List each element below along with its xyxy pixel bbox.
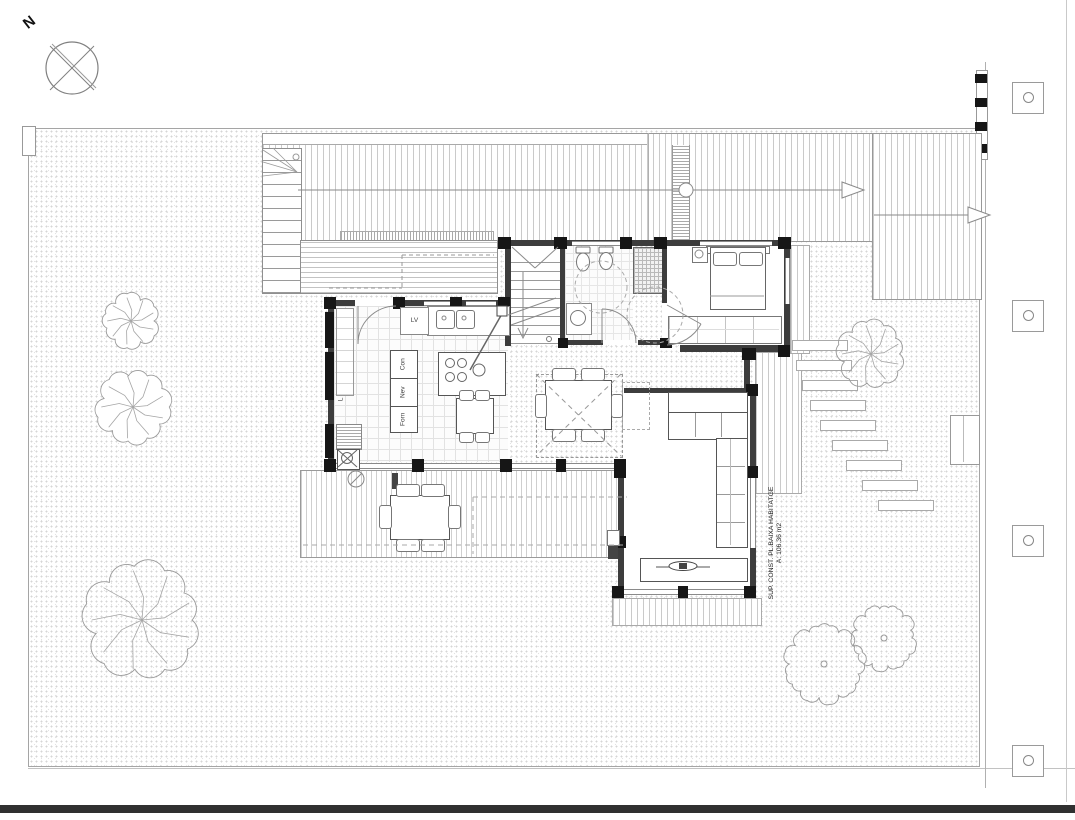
wall-segment-bedroom-south bbox=[680, 345, 790, 352]
chair bbox=[611, 394, 623, 418]
compass-north-icon bbox=[46, 42, 98, 94]
column-block bbox=[558, 338, 568, 348]
bath-vanity bbox=[566, 303, 592, 335]
dishwasher: LV bbox=[400, 307, 429, 335]
pantry-shelves bbox=[336, 308, 354, 396]
fence-post bbox=[1012, 745, 1044, 777]
appliance-tower: Con Nev Forn bbox=[390, 350, 418, 433]
north-label: N bbox=[20, 12, 39, 32]
wardrobe bbox=[668, 316, 782, 344]
fence-post bbox=[1012, 525, 1044, 557]
driveway bbox=[872, 133, 982, 300]
chair bbox=[552, 429, 576, 442]
stepping-plank bbox=[820, 420, 876, 431]
utility-boiler bbox=[336, 424, 362, 450]
stepping-plank bbox=[802, 380, 858, 391]
chair bbox=[581, 368, 605, 381]
wall-living-east-upper bbox=[750, 388, 756, 474]
chair bbox=[535, 394, 547, 418]
shower-tray bbox=[633, 247, 664, 294]
column-block bbox=[324, 459, 336, 472]
stepping-plank bbox=[846, 460, 902, 471]
deck-strip-below-living bbox=[612, 598, 762, 626]
chair bbox=[379, 505, 392, 529]
roof-pergola bbox=[262, 133, 874, 242]
plot-boundary-line-right bbox=[1066, 0, 1067, 802]
kitchen-table bbox=[456, 398, 494, 434]
stepping-plank bbox=[810, 400, 866, 411]
pantry-label: L bbox=[339, 397, 346, 401]
chair bbox=[459, 390, 474, 401]
garden-gate-east bbox=[950, 415, 980, 465]
column-block bbox=[500, 459, 512, 472]
kitchen-sink-basin bbox=[456, 310, 475, 329]
chair bbox=[475, 390, 490, 401]
roof-gutter-strip bbox=[672, 145, 690, 240]
stepping-plank bbox=[832, 440, 888, 451]
sofa-back-line bbox=[730, 439, 731, 545]
column-block bbox=[614, 466, 626, 478]
fence-rail-segment bbox=[975, 74, 987, 83]
area-annotation: SUP. CONST. PL.BAIXA HABITATGE A: 106.36… bbox=[768, 478, 786, 608]
floor-plan-canvas: LV Con Nev Forn L bbox=[0, 0, 1075, 820]
window-bath-north bbox=[572, 241, 626, 246]
oven-label: Forn bbox=[401, 413, 408, 426]
fence-post bbox=[1012, 300, 1044, 332]
column-block bbox=[678, 586, 688, 598]
column-block bbox=[556, 459, 566, 472]
tall-unit-fridge: Nev bbox=[391, 379, 417, 407]
fridge-label: Nev bbox=[401, 387, 408, 399]
sofa-cushion-line bbox=[695, 413, 696, 437]
window-south-main bbox=[328, 463, 624, 469]
door-gap-kitchen-north bbox=[355, 300, 395, 306]
column-block bbox=[742, 348, 756, 360]
stepping-plank bbox=[862, 480, 918, 491]
column-block bbox=[412, 459, 424, 472]
site-boundary-line-bottom bbox=[28, 768, 1075, 769]
area-annotation-line1: SUP. CONST. PL.BAIXA HABITATGE bbox=[768, 478, 776, 608]
chair bbox=[421, 484, 445, 497]
roof-edge-strip bbox=[263, 134, 647, 145]
fence-rail-segment bbox=[975, 98, 987, 107]
side-door-leaf bbox=[608, 545, 618, 559]
column-block bbox=[744, 586, 756, 598]
column-block bbox=[620, 237, 632, 249]
column-block bbox=[324, 297, 336, 309]
kitchen-sink-basin bbox=[436, 310, 455, 329]
stepping-plank bbox=[878, 500, 934, 511]
window-living-south bbox=[624, 589, 752, 595]
column-block bbox=[325, 352, 334, 400]
post-circle bbox=[1023, 755, 1034, 766]
chair bbox=[581, 429, 605, 442]
terrace-deck-south bbox=[300, 470, 632, 558]
gate-leaf-line bbox=[963, 416, 964, 462]
stepping-plank bbox=[796, 360, 852, 371]
chair bbox=[396, 484, 420, 497]
tall-unit-oven: Forn bbox=[391, 407, 417, 432]
door-gap-bath bbox=[603, 340, 638, 345]
washing-machine bbox=[337, 449, 360, 470]
column-block bbox=[778, 237, 791, 249]
chair bbox=[459, 432, 474, 443]
sofa-cushion-line bbox=[717, 466, 745, 467]
street-edge-bar bbox=[0, 805, 1075, 813]
tv-bench bbox=[640, 558, 748, 582]
outdoor-table bbox=[390, 495, 450, 540]
fence-post bbox=[1012, 82, 1044, 114]
post-circle bbox=[1023, 92, 1034, 103]
pillow bbox=[713, 252, 737, 266]
fence-rail-segment bbox=[975, 122, 987, 131]
sofa-cushion-line bbox=[721, 413, 722, 437]
sofa-seat bbox=[668, 412, 748, 440]
area-annotation-line2: A: 106.36 m2 bbox=[776, 478, 784, 608]
sofa-chaise bbox=[716, 438, 748, 548]
column-block bbox=[778, 345, 790, 357]
chair bbox=[475, 432, 490, 443]
post-circle bbox=[1023, 535, 1034, 546]
chair bbox=[552, 368, 576, 381]
column-block bbox=[325, 312, 334, 348]
column-block bbox=[654, 237, 667, 249]
wall-bath-south-a bbox=[565, 340, 603, 345]
sofa-cushion-line bbox=[717, 522, 745, 523]
column-block bbox=[612, 586, 624, 598]
wall-partition-stair-bath bbox=[560, 245, 565, 345]
column-block bbox=[498, 237, 511, 249]
interior-stair bbox=[511, 262, 560, 344]
sideboard-outline bbox=[622, 382, 650, 430]
tall-unit-freezer: Con bbox=[391, 351, 417, 379]
freezer-label: Con bbox=[401, 359, 408, 371]
side-door-frame bbox=[607, 530, 620, 546]
north-canopy bbox=[300, 240, 498, 294]
column-block bbox=[554, 237, 567, 249]
wall-partition-bath-bedroom bbox=[662, 245, 667, 305]
deck-strip-bedroom-east bbox=[790, 245, 810, 354]
chair bbox=[396, 539, 420, 552]
pillow bbox=[739, 252, 763, 266]
chair bbox=[448, 505, 461, 529]
fence-line-right bbox=[985, 62, 986, 788]
window-bedroom-east bbox=[785, 258, 790, 304]
dining-table bbox=[545, 380, 612, 430]
sofa-back bbox=[668, 392, 748, 414]
deck-strip-east bbox=[755, 352, 802, 494]
sofa-cushion-line bbox=[717, 494, 745, 495]
nightstand bbox=[692, 247, 708, 263]
stair-top-landing bbox=[511, 246, 560, 262]
chair bbox=[421, 539, 445, 552]
wardrobe-rail-line bbox=[669, 329, 779, 330]
post-circle bbox=[1023, 310, 1034, 321]
exterior-stair bbox=[262, 148, 302, 294]
column-block bbox=[325, 424, 334, 458]
garden-gate-post bbox=[22, 126, 36, 156]
dishwasher-label: LV bbox=[411, 318, 418, 325]
stepping-plank bbox=[792, 340, 848, 351]
roof-joint-line bbox=[648, 133, 649, 240]
window-living-east bbox=[750, 474, 756, 548]
